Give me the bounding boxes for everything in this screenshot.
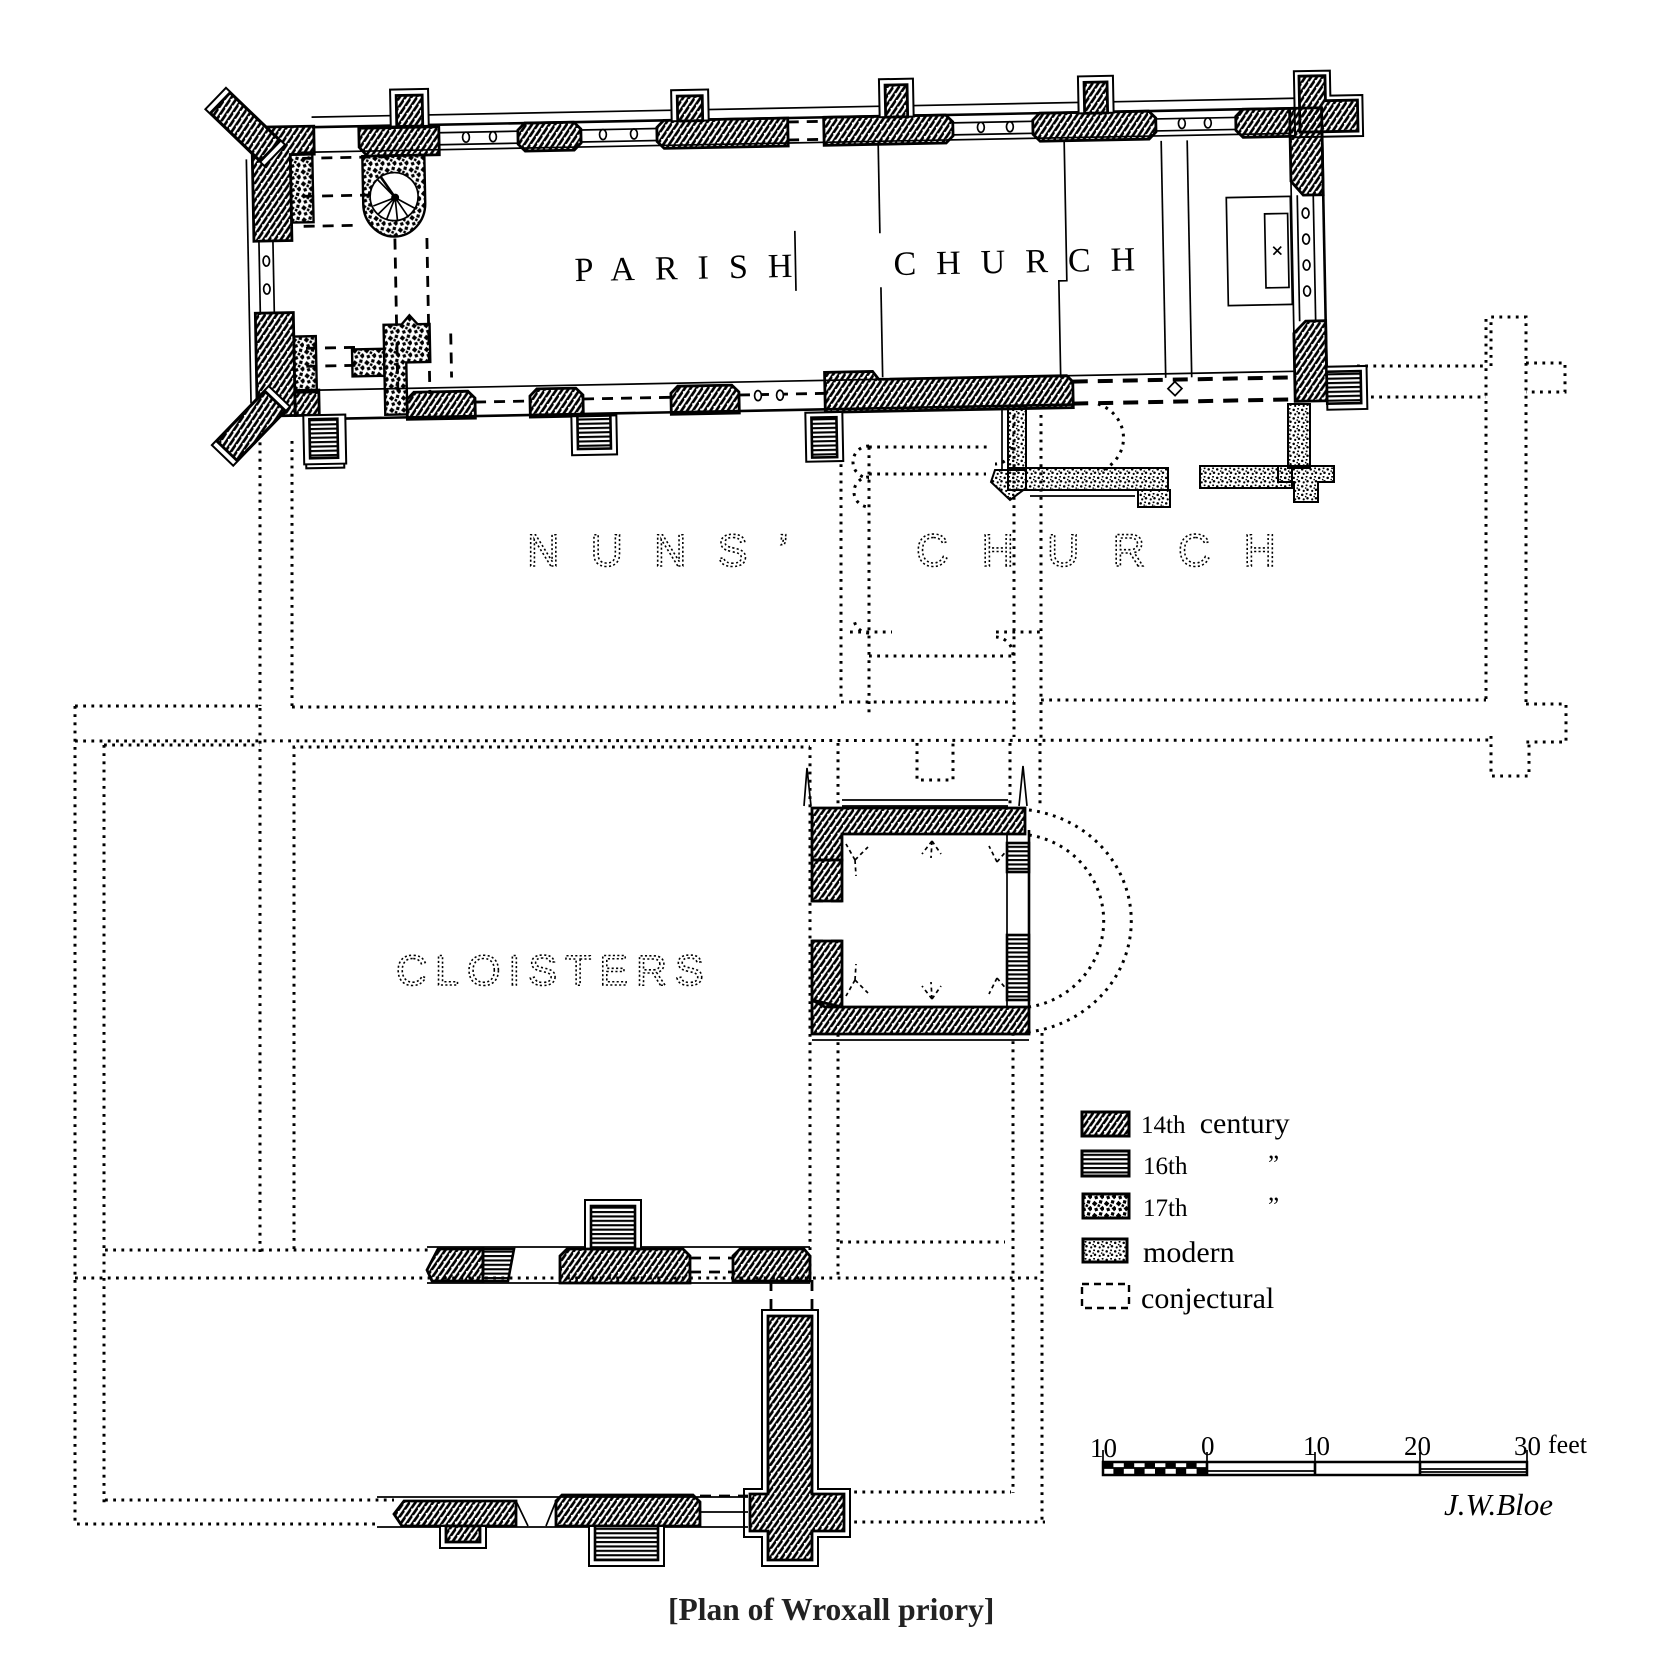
svg-text:”: ” xyxy=(1268,1151,1279,1178)
svg-text:feet: feet xyxy=(1548,1430,1588,1459)
svg-text:[Plan of Wroxall priory]: [Plan of Wroxall priory] xyxy=(668,1592,994,1627)
svg-text:16th: 16th xyxy=(1143,1153,1188,1180)
svg-text:10: 10 xyxy=(1090,1433,1117,1463)
svg-text:14th century: 14th century xyxy=(1141,1107,1290,1140)
svg-text:30: 30 xyxy=(1514,1431,1541,1461)
svg-text:0: 0 xyxy=(1201,1431,1215,1461)
svg-text:CHURCH: CHURCH xyxy=(893,241,1155,283)
svg-text:10: 10 xyxy=(1303,1431,1330,1461)
svg-text:modern: modern xyxy=(1143,1236,1235,1269)
svg-text:NUNS’: NUNS’ xyxy=(527,525,820,576)
svg-text:CHURCH: CHURCH xyxy=(916,525,1309,576)
svg-text:CLOISTERS: CLOISTERS xyxy=(396,947,712,995)
svg-text:20: 20 xyxy=(1404,1431,1431,1461)
svg-text:”: ” xyxy=(1268,1193,1279,1220)
svg-text:J.W.Bloe: J.W.Bloe xyxy=(1444,1487,1553,1522)
svg-text:PARISH: PARISH xyxy=(574,248,812,290)
svg-text:17th: 17th xyxy=(1143,1195,1188,1222)
svg-text:conjectural: conjectural xyxy=(1141,1282,1274,1315)
